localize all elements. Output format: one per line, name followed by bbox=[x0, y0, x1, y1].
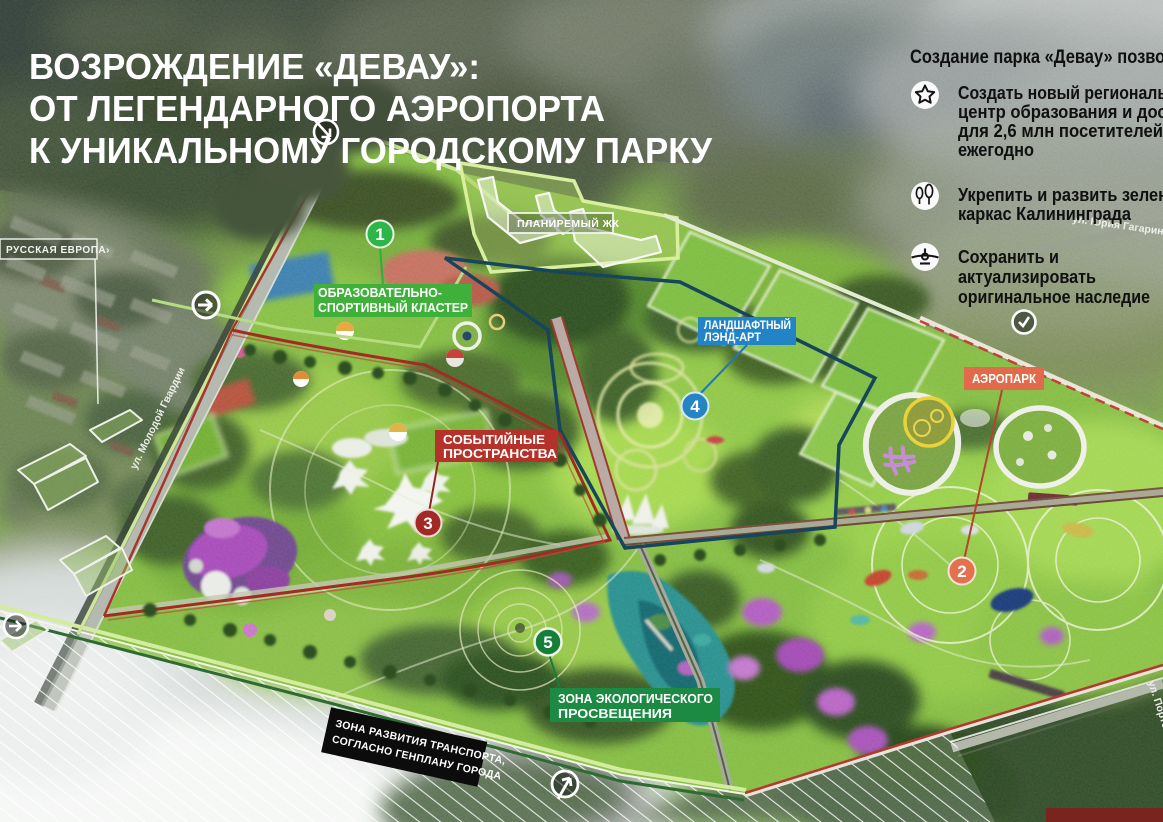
svg-text:К УНИКАЛЬНОМУ ГОРОДСКОМУ ПА: К УНИКАЛЬНОМУ ГОРОДСКОМУ ПАРКУ bbox=[29, 130, 713, 171]
svg-text:ПЛАНИРЕМЫЙ ЖК: ПЛАНИРЕМЫЙ ЖК bbox=[517, 217, 619, 230]
svg-text:ежегодно: ежегодно bbox=[958, 140, 1034, 160]
svg-text:2: 2 bbox=[957, 562, 966, 581]
svg-text:ВОЗРОЖДЕНИЕ «ДЕВАУ»:: ВОЗРОЖДЕНИЕ «ДЕВАУ»: bbox=[29, 46, 480, 87]
svg-text:3: 3 bbox=[423, 514, 432, 533]
svg-text:каркас Калининграда: каркас Калининграда bbox=[958, 204, 1132, 224]
svg-text:ПРОСВЕЩЕНИЯ: ПРОСВЕЩЕНИЯ bbox=[558, 706, 672, 721]
svg-text:5: 5 bbox=[543, 633, 552, 652]
svg-text:4: 4 bbox=[690, 397, 700, 416]
svg-text:ОТ ЛЕГЕНДАРНОГО АЭРОПОРТА: ОТ ЛЕГЕНДАРНОГО АЭРОПОРТА bbox=[29, 88, 605, 129]
svg-text:Создать новый региональный: Создать новый региональный bbox=[958, 83, 1163, 103]
svg-text:актуализировать: актуализировать bbox=[958, 267, 1096, 287]
svg-text:Укрепить и развить зеленый: Укрепить и развить зеленый bbox=[958, 185, 1163, 205]
svg-text:РУССКАЯ ЕВРОПА›: РУССКАЯ ЕВРОПА› bbox=[6, 245, 110, 256]
svg-text:ПРОСТРАНСТВА: ПРОСТРАНСТВА bbox=[443, 446, 558, 461]
svg-text:СПОРТИВНЫЙ КЛАСТЕР: СПОРТИВНЫЙ КЛАСТЕР bbox=[318, 300, 468, 315]
svg-text:СОБЫТИЙНЫЕ: СОБЫТИЙНЫЕ bbox=[443, 432, 545, 447]
svg-text:Создание парка «Девау» позволи: Создание парка «Девау» позволит: bbox=[910, 47, 1163, 68]
svg-text:АЭРОПАРК: АЭРОПАРК bbox=[972, 371, 1036, 386]
svg-text:ЗОНА ЭКОЛОГИЧЕСКОГО: ЗОНА ЭКОЛОГИЧЕСКОГО bbox=[558, 691, 713, 706]
svg-text:для 2,6 млн посетителей: для 2,6 млн посетителей bbox=[958, 121, 1163, 141]
svg-text:ОБРАЗОВАТЕЛЬНО-: ОБРАЗОВАТЕЛЬНО- bbox=[318, 285, 442, 300]
svg-text:ЛЭНД-АРТ: ЛЭНД-АРТ bbox=[704, 330, 762, 344]
svg-text:1: 1 bbox=[375, 225, 384, 244]
svg-text:центр образования и досуга: центр образования и досуга bbox=[958, 102, 1163, 122]
svg-text:Сохранить и: Сохранить и bbox=[958, 247, 1059, 267]
svg-text:оригинальное наследие: оригинальное наследие bbox=[958, 287, 1150, 307]
